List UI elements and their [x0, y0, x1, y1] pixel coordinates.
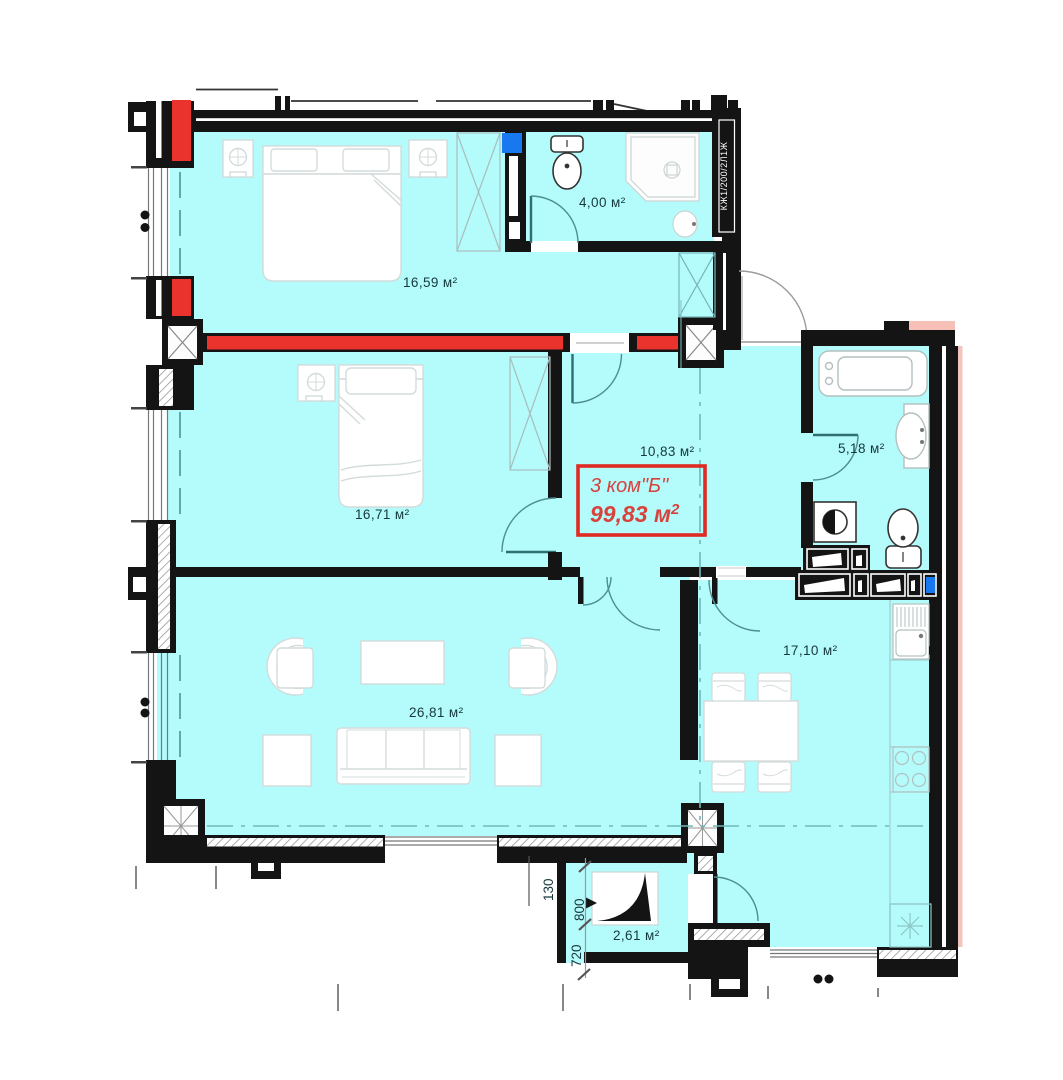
svg-text:3 ком"Б": 3 ком"Б"	[590, 475, 669, 497]
svg-text:5,18 м²: 5,18 м²	[838, 441, 885, 456]
svg-text:800: 800	[572, 898, 587, 921]
svg-text:16,59 м²: 16,59 м²	[403, 275, 458, 290]
svg-text:130: 130	[541, 878, 556, 901]
svg-text:17,10 м²: 17,10 м²	[783, 643, 838, 658]
svg-text:2,61 м²: 2,61 м²	[613, 928, 660, 943]
svg-text:26,81 м²: 26,81 м²	[409, 705, 464, 720]
svg-text:16,71 м²: 16,71 м²	[355, 507, 410, 522]
svg-text:720: 720	[569, 944, 584, 967]
svg-text:99,83 м2: 99,83 м2	[590, 501, 680, 527]
svg-text:10,83 м²: 10,83 м²	[640, 444, 695, 459]
svg-text:КЖ1/200/2Л1Ж: КЖ1/200/2Л1Ж	[719, 141, 729, 210]
svg-text:4,00 м²: 4,00 м²	[579, 195, 626, 210]
